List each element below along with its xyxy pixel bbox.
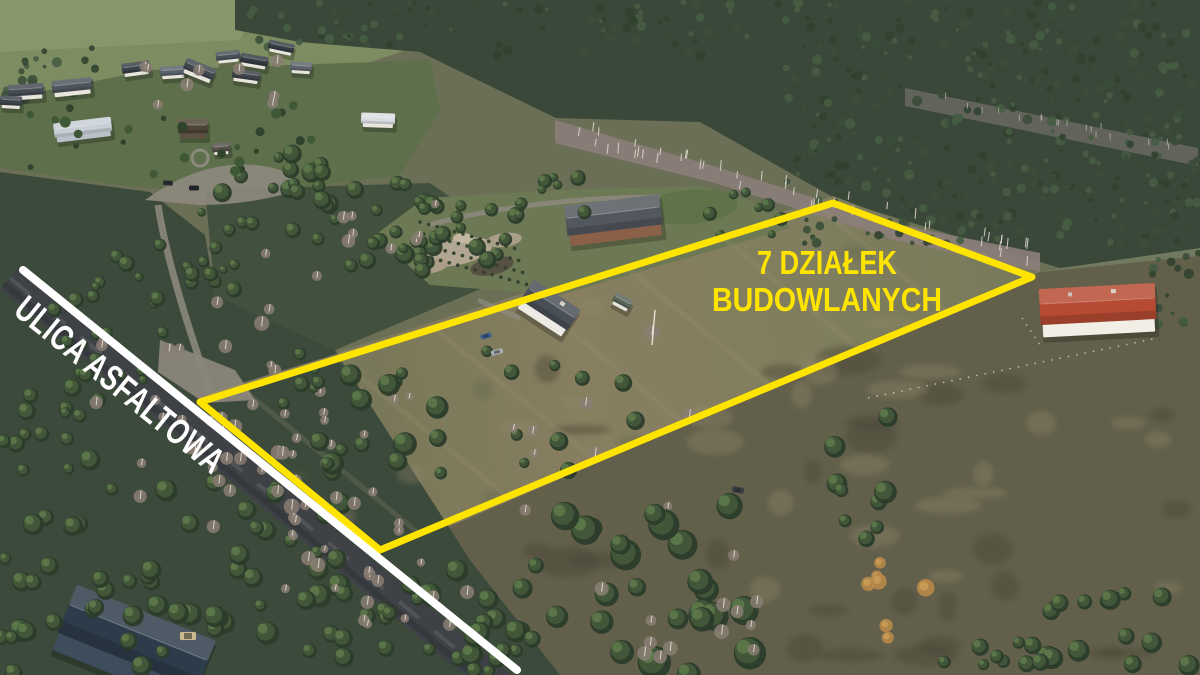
- planted-bush: [517, 259, 521, 263]
- forest-canopy-dot: [587, 16, 595, 24]
- forest-canopy-dot: [1138, 165, 1143, 170]
- pine-tree: [20, 429, 25, 434]
- pine-tree: [704, 208, 710, 214]
- pine-tree: [431, 431, 438, 438]
- pine-tree: [716, 231, 720, 235]
- village-car-2: [189, 186, 199, 191]
- forest-canopy-dot: [604, 34, 612, 42]
- pine-tree: [416, 264, 423, 271]
- forest-canopy-dot: [278, 12, 285, 19]
- pine-tree: [515, 211, 519, 215]
- forest-canopy-dot: [1161, 179, 1170, 188]
- pine-tree: [313, 234, 319, 240]
- planted-bush: [513, 247, 517, 251]
- forest-canopy-dot: [884, 51, 888, 55]
- forest-canopy-dot: [934, 17, 939, 22]
- pine-tree: [291, 186, 298, 193]
- pine-tree: [149, 597, 158, 606]
- forest-canopy-dot: [850, 113, 854, 117]
- pine-tree: [880, 409, 888, 417]
- pine-tree: [576, 372, 582, 378]
- forest-canopy-dot: [1015, 226, 1024, 235]
- red-roof-house: [1039, 283, 1160, 343]
- forest-canopy-dot: [897, 136, 903, 142]
- forest-canopy-dot: [1021, 42, 1025, 46]
- forest-canopy-dot: [1130, 58, 1139, 67]
- forest-canopy-dot: [386, 41, 393, 48]
- forest-canopy-dot: [850, 131, 856, 137]
- pine-tree: [669, 610, 678, 619]
- aerial-photo-scene: 7 DZIAŁEK BUDOWLANYCH ULICA ASFALTOWA: [0, 0, 1200, 675]
- forest-canopy-dot: [1144, 133, 1148, 137]
- forest-canopy-dot: [824, 99, 832, 107]
- forest-canopy-dot: [1056, 113, 1062, 119]
- forest-canopy-dot: [52, 57, 62, 67]
- garden-conifer: [177, 122, 187, 132]
- forest-canopy-dot: [33, 56, 39, 62]
- pine-tree: [1079, 596, 1085, 602]
- planted-bush: [508, 256, 512, 260]
- forest-canopy-dot: [873, 167, 878, 172]
- forest-canopy-dot: [503, 46, 512, 55]
- pine-tree: [384, 607, 390, 613]
- forest-canopy-dot: [974, 107, 982, 115]
- forest-canopy-dot: [688, 31, 693, 36]
- forest-canopy-dot: [895, 24, 905, 34]
- pine-tree: [468, 664, 475, 671]
- forest-canopy-dot: [1059, 30, 1063, 34]
- pine-tree: [35, 428, 41, 434]
- pine-tree: [514, 580, 522, 588]
- forest-canopy-dot: [601, 28, 605, 32]
- pine-tree: [616, 376, 623, 383]
- forest-canopy-dot: [1016, 74, 1022, 80]
- forest-canopy-dot: [1187, 80, 1197, 90]
- forest-canopy-dot: [1043, 159, 1048, 164]
- garden-conifer: [60, 117, 71, 128]
- forest-canopy-dot: [310, 14, 315, 19]
- forest-canopy-dot: [850, 93, 860, 103]
- pine-tree: [762, 199, 768, 205]
- pine-tree: [230, 260, 235, 265]
- forest-canopy-dot: [534, 4, 544, 14]
- forest-canopy-dot: [1184, 269, 1194, 279]
- heath-light-patch: [928, 570, 963, 582]
- pine-tree: [679, 665, 689, 675]
- forest-canopy-dot: [1092, 111, 1099, 118]
- forest-canopy-dot: [321, 23, 325, 27]
- forest-canopy-dot: [599, 19, 603, 23]
- forest-canopy-dot: [851, 74, 856, 79]
- forest-canopy-dot: [1114, 175, 1119, 180]
- heath-light-patch: [867, 380, 929, 398]
- pine-tree: [205, 268, 211, 274]
- forest-canopy-dot: [1176, 134, 1182, 140]
- forest-canopy-dot: [967, 164, 976, 173]
- forest-canopy-dot: [1183, 253, 1190, 260]
- forest-canopy-dot: [696, 13, 705, 22]
- planted-bush: [525, 283, 529, 287]
- birch-trunk: [681, 154, 682, 161]
- forest-canopy-dot: [1003, 188, 1011, 196]
- forest-canopy-dot: [1144, 201, 1148, 205]
- forest-canopy-dot: [343, 35, 347, 39]
- pine-tree: [397, 368, 402, 373]
- forest-canopy-dot: [942, 178, 951, 187]
- pine-tree: [400, 180, 405, 185]
- forest-canopy-dot: [1056, 231, 1064, 239]
- forest-canopy-dot: [1021, 164, 1029, 172]
- forest-canopy-dot: [900, 196, 906, 202]
- forest-canopy-dot: [1053, 81, 1061, 89]
- white-warehouse: [361, 112, 398, 132]
- forest-canopy-dot: [330, 9, 339, 18]
- forest-canopy-dot: [956, 28, 960, 32]
- pine-tree: [1102, 591, 1110, 599]
- pine-tree: [415, 254, 422, 261]
- heath-dark-patch: [820, 648, 884, 662]
- forest-canopy-dot: [785, 87, 790, 92]
- village-car-1: [163, 180, 173, 186]
- heath-dark-patch: [917, 636, 961, 654]
- pine-tree: [337, 445, 342, 450]
- forest-canopy-dot: [932, 9, 939, 16]
- forest-canopy-dot: [1047, 116, 1057, 126]
- pine-tree: [335, 631, 343, 639]
- pine-tree: [224, 225, 229, 230]
- forest-canopy-dot: [1158, 62, 1168, 72]
- forest-canopy-dot: [596, 4, 605, 13]
- forest-canopy-dot: [1006, 30, 1011, 35]
- forest-canopy-dot: [81, 56, 89, 64]
- pine-tree: [42, 558, 50, 566]
- forest-canopy-dot: [1143, 114, 1153, 124]
- birch-trunk: [811, 200, 812, 207]
- forest-canopy-dot: [945, 121, 950, 126]
- pine-tree: [289, 179, 294, 184]
- planted-bush: [516, 280, 520, 284]
- forest-canopy-dot: [540, 25, 545, 30]
- forest-canopy-dot: [926, 215, 936, 225]
- forest-canopy-dot: [831, 48, 838, 55]
- forest-canopy-dot: [829, 36, 837, 44]
- forest-canopy-dot: [1001, 60, 1009, 68]
- forest-canopy-dot: [1056, 38, 1062, 44]
- forest-canopy-dot: [1007, 139, 1012, 144]
- garden-conifer: [27, 111, 34, 118]
- forest-canopy-dot: [816, 222, 825, 231]
- garden-conifer: [161, 116, 166, 121]
- forest-canopy-dot: [696, 51, 706, 61]
- forest-canopy-dot: [1088, 197, 1093, 202]
- forest-canopy-dot: [1151, 138, 1159, 146]
- forest-canopy-dot: [1065, 182, 1071, 188]
- forest-canopy-dot: [939, 212, 949, 222]
- pine-tree: [939, 657, 944, 662]
- forest-canopy-dot: [1120, 89, 1125, 94]
- forest-canopy-dot: [1095, 169, 1103, 177]
- forest-canopy-dot: [1111, 214, 1116, 219]
- forest-canopy-dot: [1139, 238, 1149, 248]
- forest-canopy-dot: [979, 151, 987, 159]
- heath-dark-patch: [805, 460, 822, 483]
- car-window: [165, 181, 170, 184]
- forest-canopy-dot: [283, 23, 292, 32]
- pine-tree: [1125, 657, 1133, 665]
- pine-tree: [120, 257, 127, 264]
- forest-canopy-dot: [1038, 62, 1044, 68]
- pine-tree: [871, 522, 877, 528]
- pine-tree: [88, 291, 94, 297]
- forest-canopy-dot: [1152, 22, 1160, 30]
- garden-conifer: [217, 149, 226, 158]
- forest-canopy-dot: [1167, 257, 1176, 266]
- forest-canopy-dot: [887, 178, 891, 182]
- pine-tree: [198, 209, 202, 213]
- garden-conifer: [234, 144, 240, 150]
- pine-tree: [768, 231, 771, 234]
- garden-conifer: [230, 166, 240, 176]
- pine-tree: [0, 554, 5, 559]
- forest-canopy-dot: [664, 16, 669, 21]
- planted-bush: [508, 278, 512, 282]
- pine-tree: [331, 215, 336, 220]
- pine-tree: [1143, 634, 1152, 643]
- planted-bush: [473, 268, 477, 272]
- forest-canopy-dot: [1034, 22, 1040, 28]
- forest-canopy-dot: [882, 188, 891, 197]
- forest-canopy-dot: [503, 1, 508, 6]
- pine-tree: [182, 516, 190, 524]
- pine-tree: [279, 399, 284, 404]
- forest-canopy-dot: [1123, 154, 1130, 161]
- pine-tree: [330, 576, 340, 586]
- pine-tree: [285, 146, 293, 154]
- forest-canopy-dot: [819, 113, 828, 122]
- forest-canopy-dot: [625, 8, 635, 18]
- forest-canopy-dot: [782, 16, 790, 24]
- pine-tree: [247, 218, 253, 224]
- forest-canopy-dot: [1181, 182, 1188, 189]
- forest-canopy-dot: [269, 28, 273, 32]
- birch-trunk: [1001, 235, 1002, 243]
- forest-canopy-dot: [965, 56, 971, 62]
- forest-canopy-dot: [806, 22, 816, 32]
- pine-tree: [612, 642, 622, 652]
- pine-tree: [876, 483, 886, 493]
- pine-tree: [511, 645, 517, 651]
- forest-canopy-dot: [930, 192, 939, 201]
- forest-canopy-dot: [604, 47, 608, 51]
- pine-tree: [157, 481, 166, 490]
- forest-canopy-dot: [1111, 183, 1119, 191]
- pine-tree: [1020, 657, 1027, 664]
- forest-canopy-dot: [1085, 187, 1092, 194]
- forest-canopy-dot: [955, 212, 964, 221]
- forest-canopy-dot: [1107, 239, 1114, 246]
- pine-tree: [6, 632, 12, 638]
- forest-canopy-dot: [1017, 184, 1026, 193]
- forest-canopy-dot: [1165, 293, 1169, 297]
- planted-bush: [443, 249, 447, 253]
- forest-canopy-dot: [1171, 212, 1179, 220]
- forest-canopy-dot: [1179, 201, 1184, 206]
- forest-canopy-dot: [1126, 140, 1133, 147]
- forest-canopy-dot: [830, 130, 836, 136]
- forest-canopy-dot: [1046, 85, 1053, 92]
- pine-tree: [628, 413, 636, 421]
- pine-tree: [356, 438, 363, 445]
- forest-canopy-dot: [1029, 40, 1038, 49]
- forest-canopy-dot: [858, 25, 864, 31]
- garden-conifer: [180, 153, 190, 163]
- forest-canopy-dot: [956, 237, 964, 245]
- heath-dark-patch: [523, 543, 551, 558]
- pine-tree: [284, 163, 291, 170]
- birch-trunk: [925, 222, 926, 230]
- pine-tree: [391, 177, 397, 183]
- forest-canopy-dot: [407, 8, 412, 13]
- garden-conifer: [73, 143, 79, 149]
- forest-canopy-dot: [1076, 54, 1086, 64]
- forest-canopy-dot: [845, 177, 854, 186]
- pine-tree: [505, 366, 512, 373]
- pine-tree: [336, 649, 344, 657]
- forest-canopy-dot: [886, 136, 896, 146]
- pine-tree: [630, 580, 638, 588]
- planted-bush: [465, 266, 469, 270]
- garden-conifer: [28, 164, 34, 170]
- forest-canopy-dot: [1174, 109, 1183, 118]
- heath-dark-patch: [787, 634, 823, 662]
- birch-trunk: [1027, 256, 1028, 266]
- forest-canopy-dot: [89, 45, 95, 51]
- forest-canopy-dot: [875, 136, 883, 144]
- pine-tree: [1052, 596, 1059, 603]
- forest-canopy-dot: [895, 147, 900, 152]
- forest-canopy-dot: [967, 66, 974, 73]
- planted-bush: [452, 251, 456, 255]
- pine-tree: [258, 624, 268, 634]
- pine-tree: [94, 572, 101, 579]
- forest-canopy-dot: [871, 40, 880, 49]
- pine-tree: [295, 378, 302, 385]
- pine-tree: [158, 328, 163, 333]
- forest-canopy-dot: [1022, 114, 1032, 124]
- forest-canopy-dot: [796, 172, 801, 177]
- pine-tree: [143, 562, 152, 571]
- forest-canopy-dot: [1072, 75, 1081, 84]
- forest-canopy-dot: [1083, 91, 1089, 97]
- forest-canopy-dot: [866, 231, 870, 235]
- pine-tree: [89, 600, 96, 607]
- birch-trunk: [929, 221, 930, 229]
- pine-tree: [151, 292, 158, 299]
- forest-canopy-dot: [861, 181, 871, 191]
- pine-tree: [973, 640, 980, 647]
- forest-canopy-dot: [883, 72, 888, 77]
- car-window: [192, 187, 197, 190]
- forest-canopy-dot: [1047, 9, 1051, 13]
- forest-canopy-dot: [637, 22, 647, 32]
- forest-canopy-dot: [1068, 44, 1078, 54]
- pine-tree: [419, 204, 424, 209]
- pine-tree: [548, 608, 557, 617]
- forest-canopy-dot: [416, 47, 420, 51]
- pine-tree: [379, 641, 386, 648]
- pine-tree: [312, 434, 320, 442]
- forest-canopy-dot: [952, 114, 962, 124]
- forest-canopy-dot: [633, 36, 643, 46]
- chimney: [1068, 292, 1072, 296]
- pine-tree: [124, 575, 130, 581]
- heath-dark-patch: [808, 605, 848, 616]
- forest-canopy-dot: [370, 20, 378, 28]
- forest-canopy-dot: [396, 32, 404, 40]
- pine-tree: [551, 434, 559, 442]
- forest-canopy-dot: [18, 68, 24, 74]
- forest-canopy-dot: [692, 1, 702, 11]
- forest-canopy-dot: [744, 34, 750, 40]
- forest-canopy-dot: [783, 65, 790, 72]
- forest-canopy-dot: [976, 97, 981, 102]
- forest-canopy-dot: [1133, 4, 1141, 12]
- forest-canopy-dot: [835, 134, 842, 141]
- pine-tree: [1119, 588, 1125, 594]
- garden-conifer: [307, 136, 315, 144]
- planted-bush: [512, 268, 516, 272]
- pine-tree: [836, 485, 842, 491]
- aerial-photo: 7 DZIAŁEK BUDOWLANYCH ULICA ASFALTOWA: [0, 0, 1200, 675]
- pine-tree: [313, 377, 319, 383]
- forest-canopy-dot: [1103, 79, 1113, 89]
- forest-canopy-dot: [545, 7, 549, 11]
- forest-canopy-dot: [831, 216, 837, 222]
- forest-canopy-dot: [1093, 37, 1101, 45]
- garden-conifer: [271, 108, 281, 118]
- birch-trunk: [598, 127, 599, 135]
- pine-tree: [979, 660, 984, 665]
- forest-canopy-dot: [622, 23, 631, 32]
- forest-canopy-dot: [565, 35, 570, 40]
- pine-tree: [69, 294, 76, 301]
- pine-tree: [342, 366, 351, 375]
- forest-canopy-dot: [829, 171, 836, 178]
- pine-tree: [304, 645, 310, 651]
- pine-tree: [448, 561, 457, 570]
- forest-canopy-dot: [1022, 48, 1027, 53]
- forest-canopy-dot: [977, 72, 983, 78]
- planted-bush: [499, 275, 503, 279]
- forest-canopy-dot: [896, 17, 902, 23]
- forest-canopy-dot: [1140, 52, 1145, 57]
- forest-canopy-dot: [1119, 198, 1124, 203]
- forest-canopy-dot: [43, 65, 47, 69]
- forest-canopy-dot: [317, 26, 326, 35]
- pine-tree: [456, 201, 461, 206]
- forest-canopy-dot: [827, 137, 832, 142]
- pine-tree: [65, 380, 73, 388]
- pine-tree: [64, 464, 69, 469]
- forest-canopy-dot: [1082, 151, 1089, 158]
- truck-trailer: [180, 632, 196, 640]
- forest-canopy-dot: [834, 57, 839, 62]
- forest-canopy-dot: [424, 23, 428, 27]
- forest-canopy-dot: [247, 11, 255, 19]
- forest-canopy-dot: [891, 38, 897, 44]
- heath-light-patch: [1027, 411, 1056, 435]
- forest-canopy-dot: [919, 204, 928, 213]
